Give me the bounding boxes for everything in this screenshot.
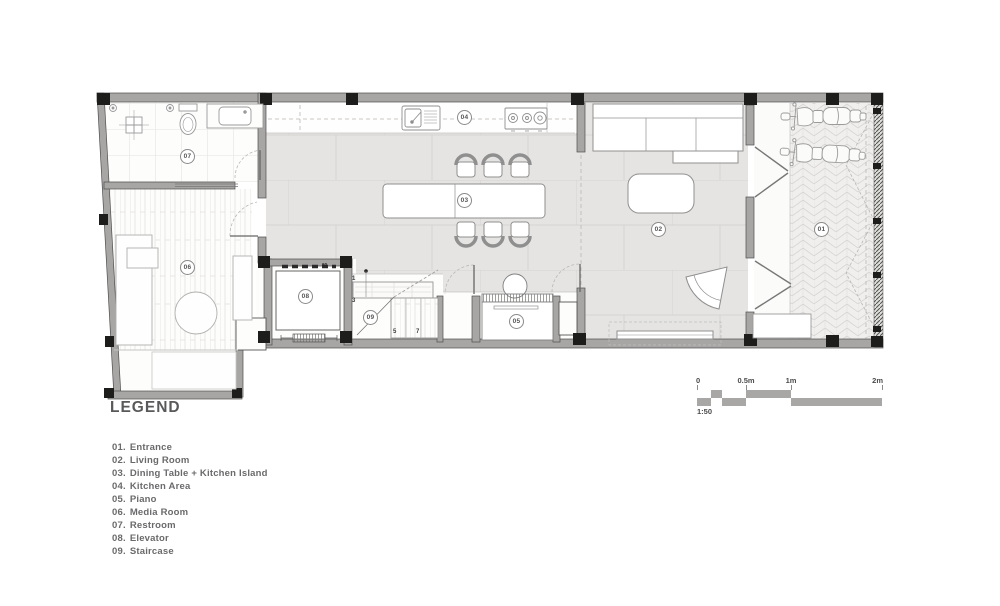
legend: LEGEND 01.Entrance 02.Living Room 03.Din… xyxy=(110,399,268,558)
legend-item: 05.Piano xyxy=(112,493,268,506)
room-badge-dining-table: 03 xyxy=(457,193,472,208)
legend-item: 08.Elevator xyxy=(112,532,268,545)
scale-label: 2m xyxy=(872,376,883,385)
legend-items: 01.Entrance 02.Living Room 03.Dining Tab… xyxy=(112,441,268,558)
room-badge-staircase: 09 xyxy=(363,310,378,325)
elevator-counterweight xyxy=(293,334,325,342)
sofa-chaise xyxy=(673,151,738,163)
piano-left-wall xyxy=(472,296,480,342)
entrance-pier-1 xyxy=(746,105,754,145)
bean-bag xyxy=(175,292,217,334)
scale-ratio: 1:50 xyxy=(697,407,712,416)
media-daybed xyxy=(152,352,236,389)
legend-item: 02.Living Room xyxy=(112,454,268,467)
legend-item: 04.Kitchen Area xyxy=(112,480,268,493)
scale-bar: 0 0.5m 1m 2m 1:50 xyxy=(697,376,885,418)
kitchen-living-pillar xyxy=(577,103,585,152)
entrance-pier-2 xyxy=(746,197,754,258)
room-badge-living-room: 02 xyxy=(651,222,666,237)
stair-step-number: 3 xyxy=(352,298,355,304)
sink-icon xyxy=(207,104,263,128)
room-badge-media-room: 06 xyxy=(180,260,195,275)
legend-item: 07.Restroom xyxy=(112,519,268,532)
scale-label: 1m xyxy=(786,376,797,385)
floor-plan-canvas: 01 02 03 04 05 06 07 08 09 1 3 5 7 60 LE… xyxy=(0,0,1000,606)
legend-item: 09.Staircase xyxy=(112,545,268,558)
restroom-bottom-wall xyxy=(104,182,235,189)
kitchen-sink-icon xyxy=(402,106,440,130)
legend-title: LEGEND xyxy=(110,399,268,417)
toilet-icon xyxy=(179,104,197,135)
entrance-walkway xyxy=(754,103,790,339)
scale-label: 0 xyxy=(696,376,700,385)
stove-icon xyxy=(505,108,547,131)
room-badge-restroom: 07 xyxy=(180,149,195,164)
shoe-cabinet xyxy=(753,314,811,338)
media-equipment xyxy=(127,248,158,268)
stair-step-number: 5 xyxy=(393,329,396,335)
legend-item: 03.Dining Table + Kitchen Island xyxy=(112,467,268,480)
legend-item: 06.Media Room xyxy=(112,506,268,519)
elevator-capacity-tag: 60 xyxy=(322,262,327,267)
music-stand xyxy=(494,306,538,309)
room-badge-elevator: 08 xyxy=(298,289,313,304)
media-bottom-wall xyxy=(108,391,242,399)
piano-keyboard xyxy=(482,294,553,302)
room-badge-kitchen-area: 04 xyxy=(457,110,472,125)
piano-side-cabinet xyxy=(559,302,577,335)
coffee-table xyxy=(628,174,694,213)
top-exterior-wall xyxy=(97,93,883,102)
stair-step-number: 7 xyxy=(416,329,419,335)
room-badge-entrance: 01 xyxy=(814,222,829,237)
scale-label: 0.5m xyxy=(737,376,754,385)
entrance-herringbone-floor xyxy=(790,103,874,339)
media-cabinet xyxy=(233,256,252,320)
legend-item: 01.Entrance xyxy=(112,441,268,454)
room-badge-piano: 05 xyxy=(509,314,524,329)
stair-step-number: 1 xyxy=(352,276,355,282)
